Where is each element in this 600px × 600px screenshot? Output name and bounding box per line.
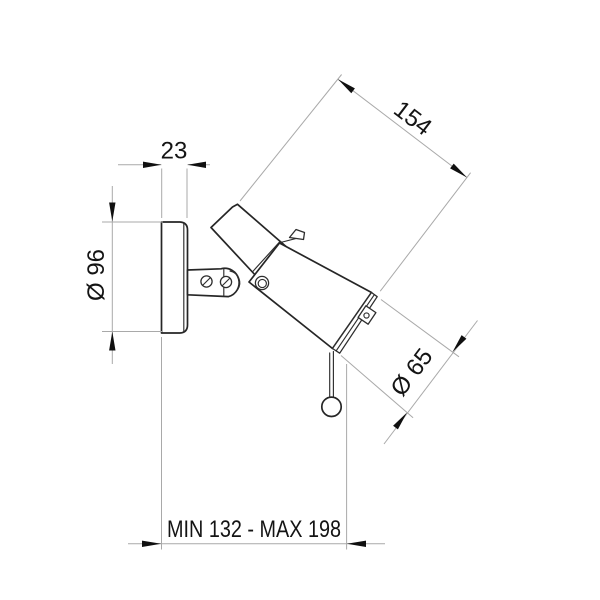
dim-label-projection: MIN 132 - MAX 198 [167, 516, 341, 543]
dim-plate-diameter: Ø 96 [83, 186, 163, 364]
dim-projection: MIN 132 - MAX 198 [128, 337, 385, 550]
dim-label-head-diameter: Ø 65 [386, 344, 439, 402]
adjustment-tab [290, 230, 305, 240]
dim-label-body-length: 154 [388, 96, 436, 142]
dim-arrow-left-icon [347, 541, 366, 547]
dim-arrow-left-icon [187, 162, 206, 168]
dim-arrow-down-icon [109, 203, 115, 222]
dim-line [338, 79, 467, 177]
spotlight-dimension-drawing: 23 Ø 96 154 Ø 65 [0, 0, 600, 600]
dimension-annotations: 23 Ø 96 154 Ø 65 [83, 75, 478, 550]
pull-cord-ball [322, 397, 341, 416]
dim-arrow-downleft-icon [453, 335, 467, 352]
dim-arrow-up-icon [109, 332, 115, 351]
dim-arrow-upright-icon [393, 413, 407, 430]
dim-label-plate-diameter: Ø 96 [83, 249, 110, 301]
dim-arrow-upleft-icon [338, 79, 355, 93]
extension-line [380, 173, 470, 292]
dim-arrow-downright-icon [450, 164, 467, 178]
dim-label-plate-depth: 23 [161, 138, 188, 165]
dim-plate-depth: 23 [118, 138, 210, 219]
technical-drawing-canvas: 23 Ø 96 154 Ø 65 [0, 0, 600, 600]
fixture [162, 204, 378, 416]
dim-arrow-right-icon [143, 162, 162, 168]
dim-arrow-right-icon [142, 541, 161, 547]
extension-line [240, 75, 342, 202]
